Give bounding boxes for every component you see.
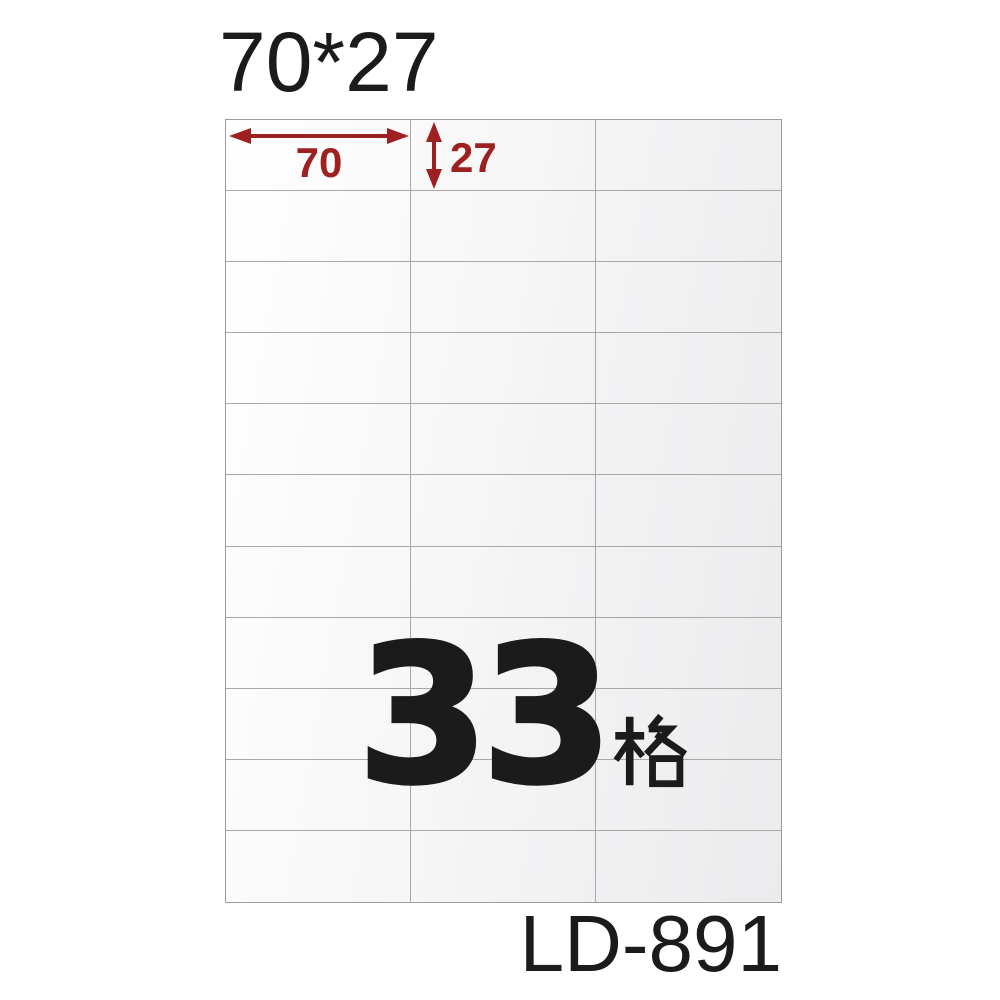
label-sheet: 70 27 33 — [225, 119, 782, 903]
width-dimension-value: 70 — [226, 142, 412, 184]
height-dimension-arrow — [426, 122, 442, 189]
cell-count-number: 33 — [357, 642, 605, 790]
page-title: 70*27 — [219, 20, 439, 104]
product-code: LD-891 — [520, 904, 782, 984]
cell-count-label: 33 — [357, 641, 689, 790]
height-dimension-value: 27 — [450, 137, 497, 179]
ge-unit-glyph — [613, 713, 689, 789]
product-diagram-page: 70*27 70 27 33 — [0, 0, 1000, 1000]
